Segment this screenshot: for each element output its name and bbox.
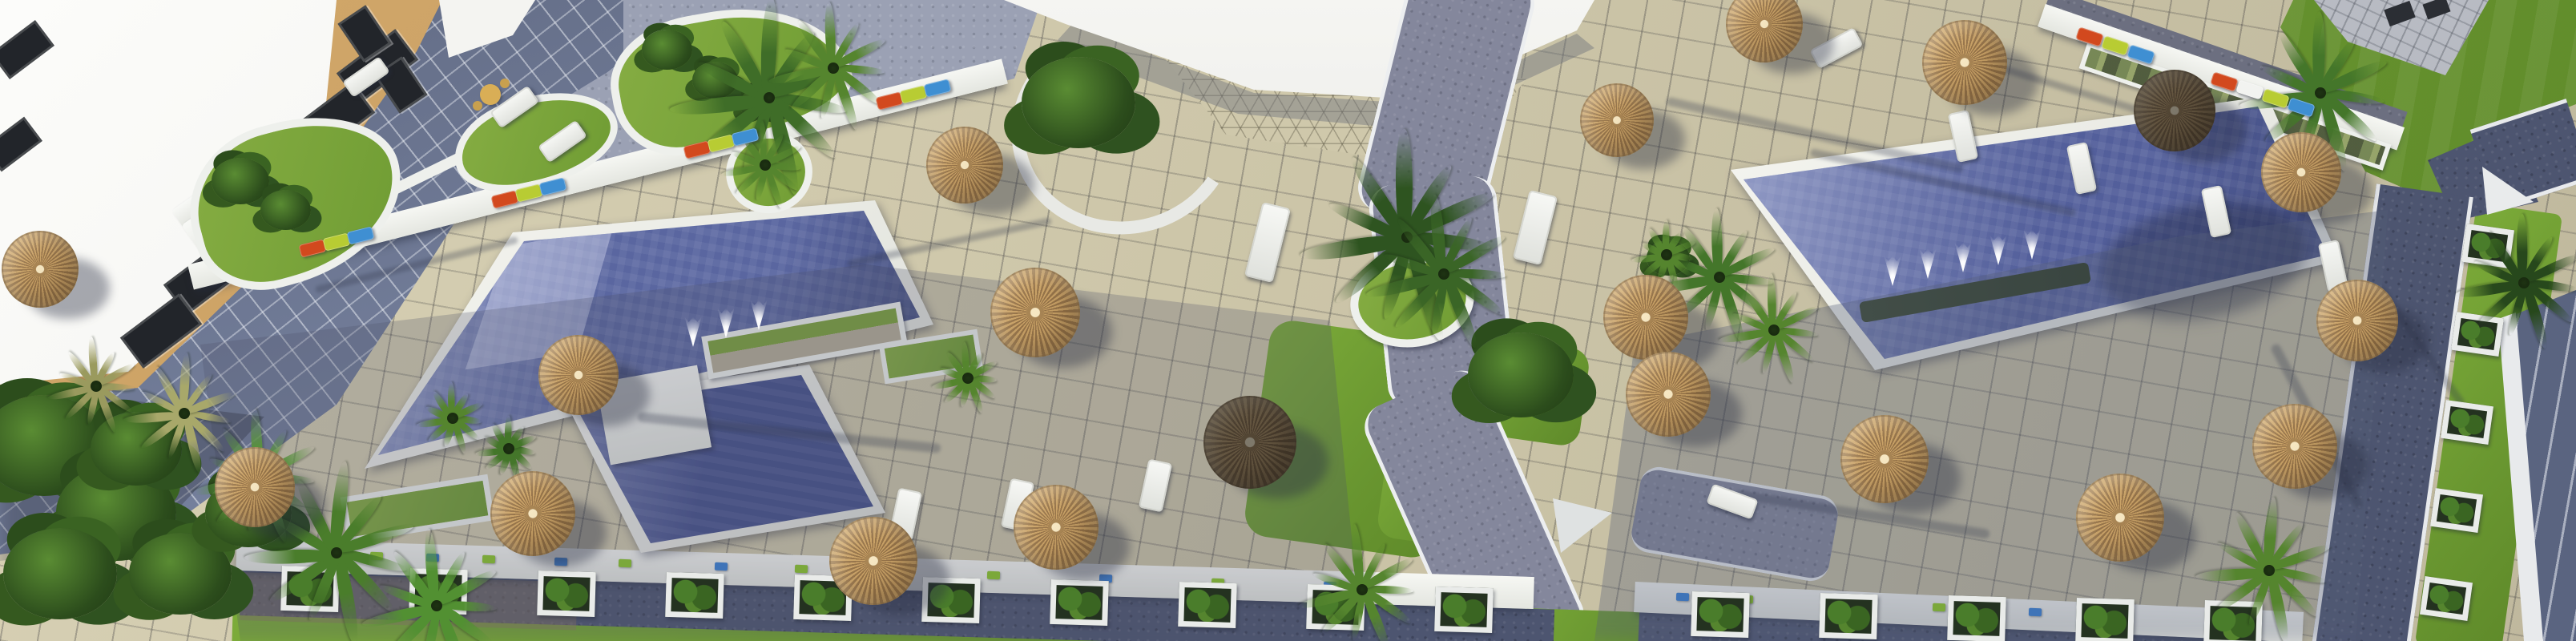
sun-lounger-white: [2201, 185, 2231, 238]
wall-accent-tile: [1933, 603, 1945, 612]
straw-umbrella: [2076, 474, 2164, 562]
sun-lounger-colored: [876, 91, 904, 110]
palm-shadow-streak: [847, 217, 1052, 268]
straw-umbrella: [1840, 415, 1929, 503]
palm-frond: [504, 415, 513, 449]
promenade-planter-box: [2075, 598, 2135, 641]
fountain-jet: [747, 300, 771, 330]
straw-umbrella: [1203, 396, 1296, 489]
sun-lounger-white: [538, 119, 587, 163]
sun-lounger-colored: [924, 79, 952, 97]
straw-umbrella: [1580, 83, 1654, 157]
promenade-planter-box: [1178, 582, 1237, 628]
decor-layer: [0, 0, 2576, 641]
wall-accent-tile: [482, 555, 495, 564]
promenade-planter-box: [537, 570, 596, 617]
roadside-planter-box: [2430, 488, 2483, 533]
sun-lounger-colored: [2210, 71, 2238, 91]
palm-frond: [1662, 220, 1671, 255]
wall-accent-tile: [987, 571, 1000, 580]
sun-lounger-white: [1948, 110, 1978, 163]
palm-shadow-streak: [637, 412, 941, 454]
sun-lounger-colored: [2127, 44, 2155, 64]
straw-umbrella: [215, 447, 295, 527]
sun-lounger-colored: [683, 140, 712, 159]
wall-accent-tile: [715, 562, 728, 571]
promenade-planter-box: [1819, 593, 1878, 639]
bush-cluster: [3, 528, 118, 619]
sun-lounger-colored: [2101, 35, 2129, 55]
palm-frond: [968, 375, 997, 383]
sun-lounger-colored: [900, 85, 928, 103]
straw-umbrella: [926, 127, 1003, 204]
straw-umbrella: [538, 335, 619, 415]
bush-cluster: [129, 533, 232, 615]
sun-lounger-colored: [491, 190, 519, 208]
fountain-jet: [714, 308, 738, 338]
sun-lounger-white: [2066, 142, 2097, 195]
straw-umbrella: [2, 231, 79, 308]
sun-lounger-colored: [707, 134, 736, 152]
sun-lounger-colored: [323, 232, 351, 251]
palm-shadow-streak: [1809, 148, 2077, 217]
resort-aerial-scene: [0, 0, 2576, 641]
straw-umbrella: [2316, 280, 2398, 361]
bush-cluster: [1468, 333, 1574, 417]
sun-lounger-colored: [2235, 79, 2264, 99]
straw-umbrella: [990, 268, 1080, 357]
wall-accent-tile: [795, 565, 808, 574]
sun-lounger-colored: [539, 177, 567, 196]
roadside-planter-box: [2420, 576, 2473, 621]
sun-lounger-colored: [515, 183, 543, 202]
promenade-planter-box: [1050, 579, 1109, 626]
bush-cluster: [642, 30, 692, 70]
sun-lounger-white: [1244, 202, 1291, 283]
wall-accent-tile: [2029, 608, 2042, 617]
straw-umbrella: [2261, 132, 2341, 212]
promenade-planter-box: [1691, 591, 1750, 638]
sun-lounger-colored: [299, 239, 327, 257]
wall-accent-tile: [1676, 593, 1689, 602]
straw-umbrella: [2134, 70, 2215, 151]
straw-umbrella: [2252, 404, 2337, 489]
sun-lounger-white: [1513, 190, 1558, 265]
palm-shadow-streak: [1666, 96, 1965, 173]
roadside-planter-box: [2451, 312, 2504, 357]
promenade-planter-box: [665, 572, 724, 619]
sun-lounger-white: [342, 56, 390, 98]
roadside-planter-box: [2441, 400, 2493, 445]
straw-umbrella: [490, 471, 575, 556]
sun-lounger-colored: [347, 226, 375, 244]
straw-umbrella: [829, 517, 917, 605]
wall-accent-tile: [619, 559, 631, 568]
bush-cluster: [212, 158, 269, 204]
promenade-planter-box: [1434, 587, 1494, 633]
fountain-jet: [1951, 242, 1975, 272]
sun-lounger-white: [490, 85, 539, 128]
bush-cluster: [260, 190, 311, 230]
straw-umbrella: [1603, 275, 1688, 360]
bush-cluster: [1022, 57, 1136, 148]
straw-umbrella: [1626, 352, 1711, 437]
straw-umbrella: [1014, 485, 1099, 570]
fountain-jet: [681, 316, 705, 347]
sun-lounger-white: [1139, 459, 1172, 513]
fountain-jet: [1986, 235, 2010, 265]
fountain-jet: [1916, 248, 1940, 279]
sun-lounger-colored: [2075, 26, 2103, 46]
fountain-jet: [1881, 256, 1905, 286]
promenade-planter-box: [1947, 595, 2006, 641]
straw-umbrella: [1922, 20, 2007, 105]
sun-lounger-white: [1706, 484, 1758, 520]
fountain-jet: [2020, 229, 2044, 260]
